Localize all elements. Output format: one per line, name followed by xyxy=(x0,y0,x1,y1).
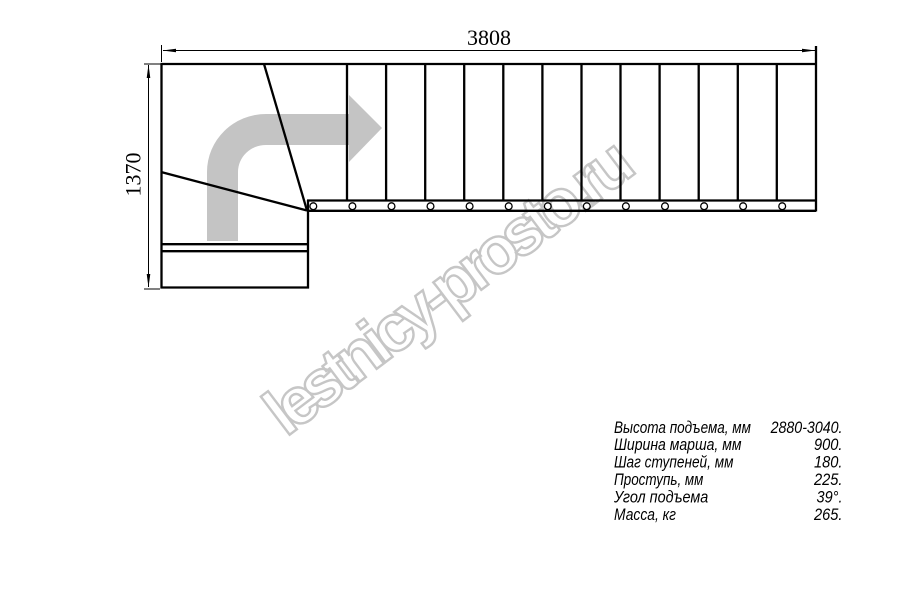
svg-text:180.: 180. xyxy=(814,454,842,472)
svg-text:900.: 900. xyxy=(814,436,842,454)
svg-text:3808: 3808 xyxy=(467,25,511,50)
svg-text:39°.: 39°. xyxy=(817,488,843,506)
svg-text:2880-3040.: 2880-3040. xyxy=(770,419,843,437)
svg-text:Шаг ступеней, мм: Шаг ступеней, мм xyxy=(614,453,734,472)
svg-text:lestnicy-prosto.ru: lestnicy-prosto.ru xyxy=(250,123,647,449)
svg-text:Ширина марша, мм: Ширина марша, мм xyxy=(614,436,742,455)
svg-text:1370: 1370 xyxy=(121,153,146,197)
svg-text:Проступь, мм: Проступь, мм xyxy=(614,471,704,490)
svg-text:Высота подъема, мм: Высота подъема, мм xyxy=(614,418,751,437)
svg-text:Масса, кг: Масса, кг xyxy=(614,506,676,525)
svg-text:265.: 265. xyxy=(813,506,842,524)
svg-text:225.: 225. xyxy=(813,471,842,489)
svg-text:Угол подъема: Угол подъема xyxy=(613,488,708,506)
